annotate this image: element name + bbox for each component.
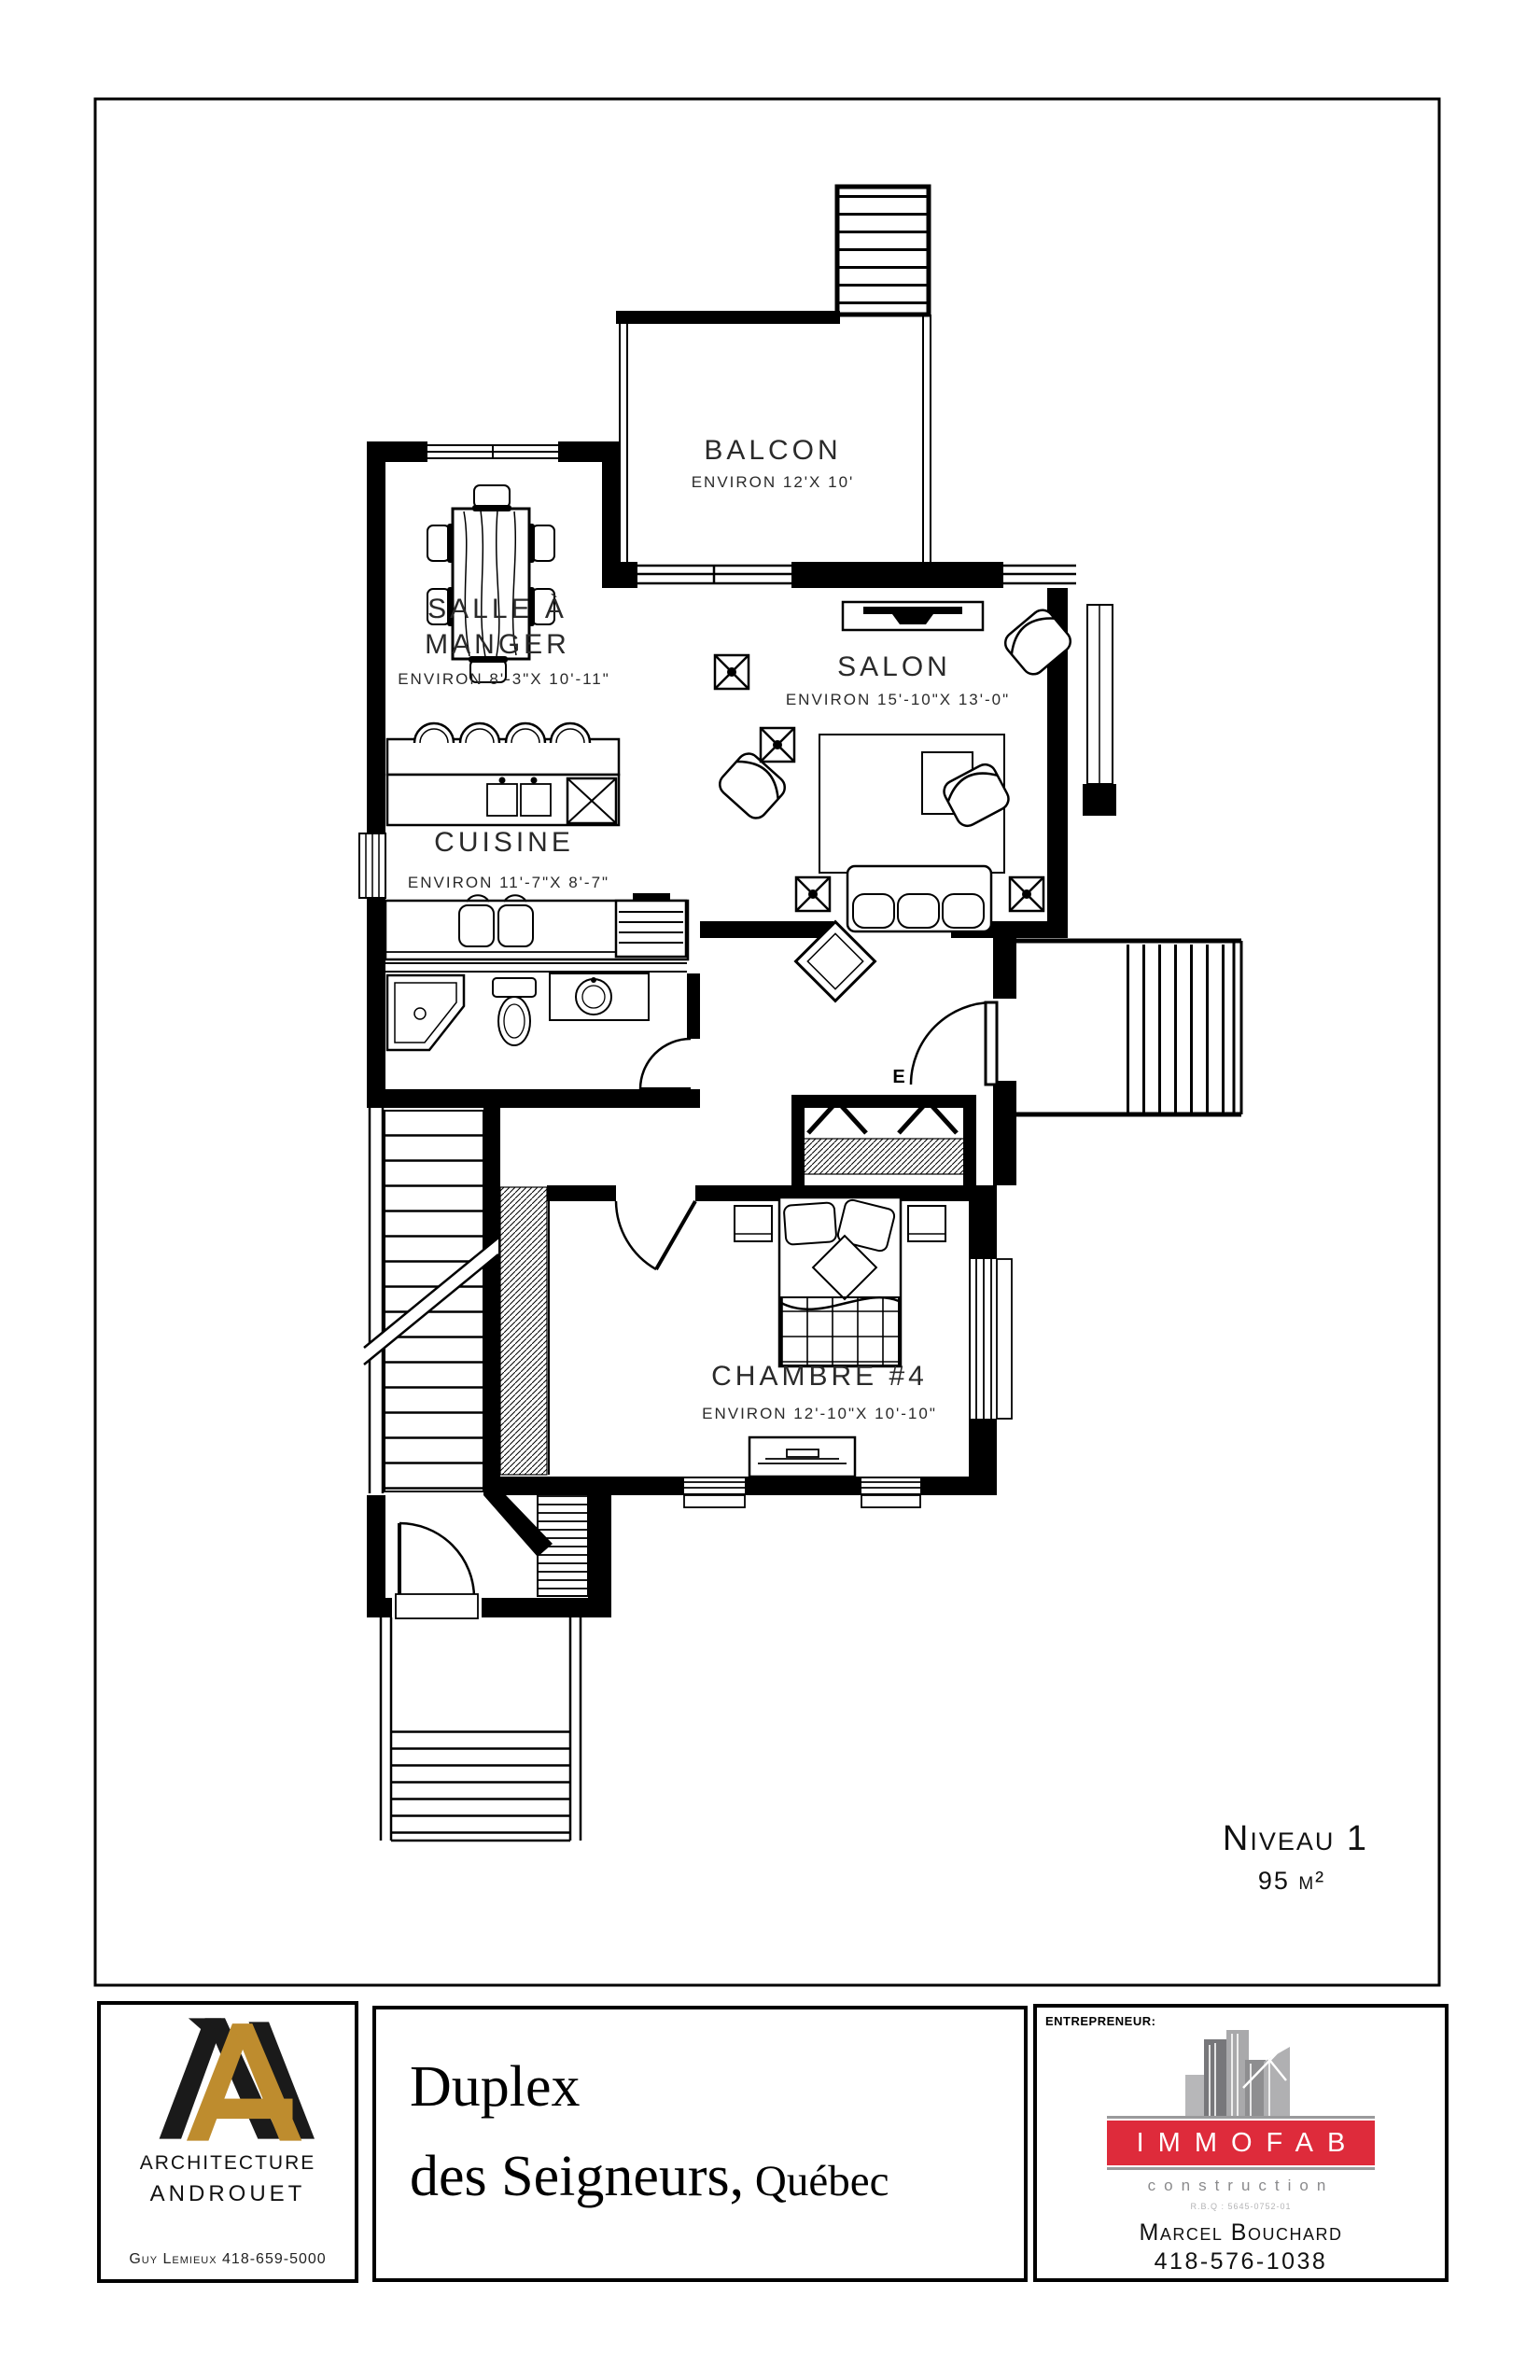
basement-stair-flight <box>538 1493 588 1596</box>
project-name-part: des Seigneurs, <box>410 2145 744 2208</box>
exterior-wall-ledge <box>1083 605 1116 816</box>
toilet <box>493 978 536 1045</box>
speaker-icon <box>715 655 749 689</box>
interior-staircase <box>364 1108 498 1493</box>
tv-screen <box>863 607 962 614</box>
label-balcon: BALCON <box>704 435 841 466</box>
stove <box>616 893 686 957</box>
dining-chair <box>427 524 454 563</box>
bed <box>779 1197 901 1366</box>
bathroom-fixtures <box>387 973 649 1050</box>
architect-contact: Guy Lemieux 418-659-5000 <box>129 2251 326 2268</box>
immofab-buildings-icon <box>1171 2030 1311 2116</box>
dining-chair <box>472 485 511 511</box>
contractor-title-box: ENTREPRENEUR: IMMOFAB construction R.B.Q… <box>1033 2004 1449 2282</box>
contractor-label: ENTREPRENEUR: <box>1045 2014 1155 2028</box>
project-title-box: Duplex des Seigneurs, Québec <box>372 2006 1028 2282</box>
dresser <box>749 1437 855 1477</box>
immofab-rule-bottom <box>1107 2167 1375 2170</box>
dim-chambre4: ENVIRON 12'-10"X 10'-10" <box>702 1405 937 1422</box>
level-area: 95 m² <box>1258 1867 1325 1895</box>
label-chambre4: CHAMBRE #4 <box>711 1361 928 1392</box>
label-salon: SALON <box>837 651 951 682</box>
pillow <box>784 1202 837 1245</box>
kitchen-counter <box>385 893 688 959</box>
immofab-logo: IMMOFAB <box>1107 2114 1375 2172</box>
speaker-icon <box>761 728 794 762</box>
architecture-androuet-logo <box>141 2018 315 2143</box>
party-wall-insulation-hatch <box>500 1187 547 1475</box>
nightstand <box>735 1206 772 1241</box>
bar-stool <box>506 723 545 743</box>
label-salle-a-manger-2: MANGER <box>425 629 570 660</box>
project-name-line2: des Seigneurs, Québec <box>410 2148 1024 2205</box>
dim-cuisine: ENVIRON 11'-7"X 8'-7" <box>408 874 609 891</box>
exterior-top-stairs <box>837 187 929 315</box>
label-cuisine: CUISINE <box>434 827 574 858</box>
architect-firm-line2: ANDROUET <box>150 2181 306 2207</box>
island-sink-bowl <box>521 784 551 816</box>
entry-hall-items: E <box>796 922 905 1087</box>
bar-stool <box>460 723 499 743</box>
level-title: Niveau 1 <box>1223 1819 1368 1858</box>
speaker-icon <box>1010 877 1043 911</box>
contractor-name: Marcel Bouchard <box>1140 2219 1343 2247</box>
bar-stool <box>551 723 590 743</box>
project-name-line1: Duplex <box>410 2058 1024 2116</box>
sofa <box>847 866 991 931</box>
contractor-license: R.B.Q : 5645-0752-01 <box>1190 2202 1291 2211</box>
immofab-wordmark: IMMOFAB <box>1107 2121 1375 2165</box>
drawing-sheet: E BALCON ENVIRON 12'X 10' SALLE À MANGER <box>0 0 1540 2380</box>
architect-title-box: ARCHITECTURE ANDROUET Guy Lemieux 418-65… <box>97 2001 358 2283</box>
front-porch-stairs <box>381 1617 581 1841</box>
kitchen-island <box>387 739 619 825</box>
contractor-phone: 418-576-1038 <box>1155 2248 1328 2275</box>
corner-shower <box>387 975 464 1050</box>
plan-border <box>95 99 1439 1985</box>
nightstand <box>908 1206 945 1241</box>
dim-balcon: ENVIRON 12'X 10' <box>692 473 855 491</box>
electrical-panel-icon: E <box>892 1067 904 1087</box>
immofab-tagline: construction <box>1148 2177 1335 2195</box>
architect-firm-line1: ARCHITECTURE <box>140 2152 316 2175</box>
closet-shelf-hatch <box>799 1139 969 1174</box>
speaker-icon <box>796 877 830 911</box>
dining-chair <box>528 524 554 563</box>
exterior-side-stairs <box>1016 941 1241 1114</box>
vanity-sink <box>550 973 649 1020</box>
island-sink-bowl <box>487 784 517 816</box>
label-salle-a-manger-1: SALLE À <box>427 594 567 624</box>
immofab-rule-top <box>1107 2116 1375 2119</box>
project-location: Québec <box>744 2157 889 2205</box>
bar-stool <box>414 723 454 743</box>
bedroom-furniture <box>735 1197 945 1477</box>
dim-salle-a-manger: ENVIRON 8'-3"X 10'-11" <box>398 670 610 688</box>
dim-salon: ENVIRON 15'-10"X 13'-0" <box>786 691 1010 708</box>
